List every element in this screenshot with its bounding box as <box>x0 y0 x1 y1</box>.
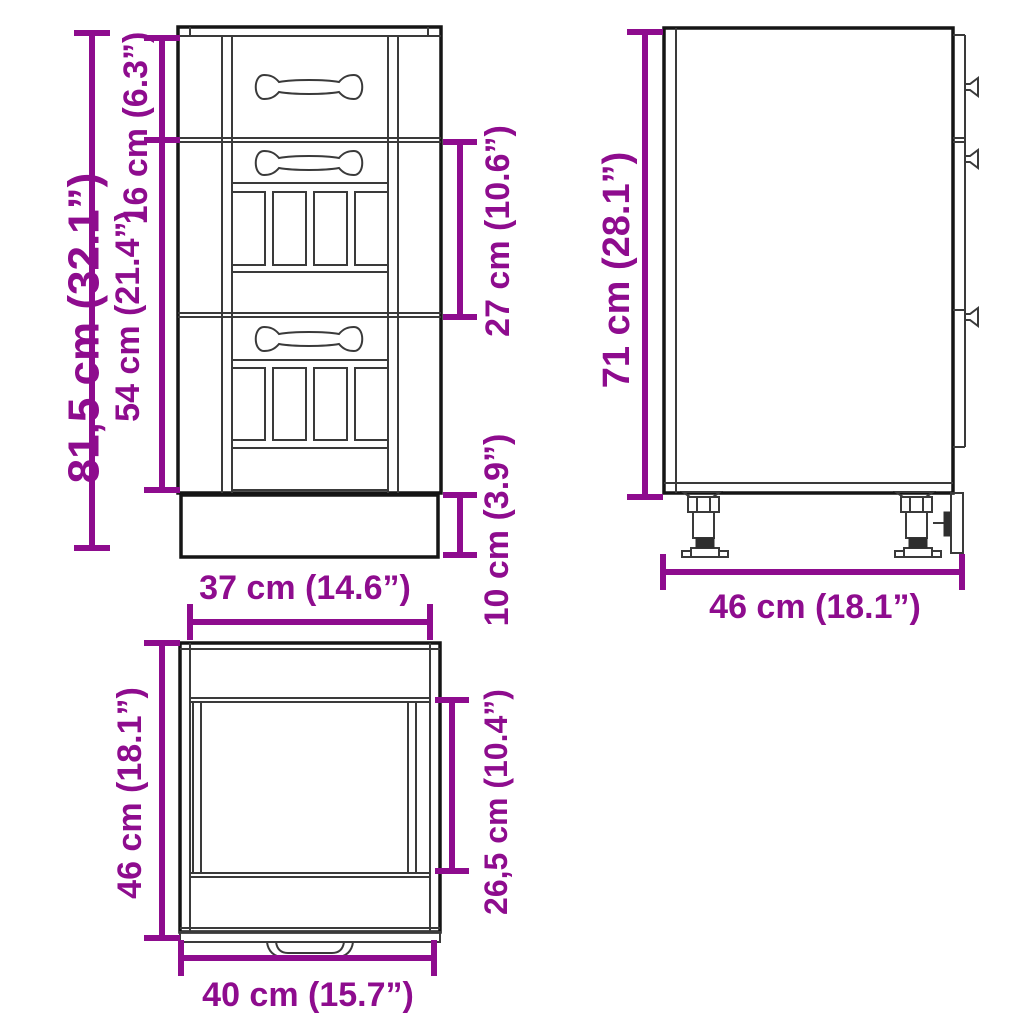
dim-line-top-depth <box>144 643 180 938</box>
label-side-depth: 46 cm (18.1”) <box>709 588 921 626</box>
cabinet-line-art: 81,5 cm (32.1”) 16 cm (6.3”) 54 cm (21.4… <box>0 0 1024 1024</box>
top-view-details <box>180 643 440 942</box>
front-leg-thread <box>696 538 714 548</box>
label-front-width: 37 cm (14.6”) <box>199 569 411 607</box>
top-view-outline <box>180 643 440 932</box>
rear-leg <box>895 492 963 557</box>
dim-line-side-depth <box>663 554 962 590</box>
top-view <box>180 643 440 957</box>
side-view <box>664 28 978 557</box>
rear-adjuster-knob <box>944 512 950 536</box>
dim-line-front-plinth <box>443 495 477 555</box>
wall-mount-clips <box>965 78 978 326</box>
label-front-plinth-height: 10 cm (3.9”) <box>478 434 516 627</box>
dimension-lines <box>74 32 962 976</box>
label-top-depth: 46 cm (18.1”) <box>111 687 149 899</box>
front-leg <box>682 492 728 557</box>
side-panel-outline <box>664 28 953 493</box>
front-frame-details <box>178 27 441 493</box>
label-front-middle-drawer-height: 27 cm (10.6”) <box>479 125 517 337</box>
drawer-handle-middle <box>256 151 363 175</box>
front-carcass-outline <box>178 27 441 493</box>
dim-line-front-width <box>190 604 430 640</box>
label-front-top-drawer-height: 16 cm (6.3”) <box>117 32 155 225</box>
label-front-lower-front-height: 54 cm (21.4”) <box>109 210 147 422</box>
front-plinth <box>181 495 438 557</box>
front-view <box>178 27 441 557</box>
dimension-diagram: 81,5 cm (32.1”) 16 cm (6.3”) 54 cm (21.4… <box>0 0 1024 1024</box>
rear-leg-thread <box>909 538 927 548</box>
label-side-body-height: 71 cm (28.1”) <box>596 152 638 389</box>
label-top-width: 40 cm (15.7”) <box>202 976 414 1014</box>
dim-line-top-width <box>181 940 434 976</box>
dim-line-front-middle-drawer <box>443 142 477 317</box>
label-top-inner-depth: 26,5 cm (10.4”) <box>478 689 514 915</box>
label-front-total-height: 81,5 cm (32.1”) <box>60 173 109 484</box>
top-view-handle-recess <box>267 942 353 957</box>
drawer-handle-bottom <box>256 327 363 351</box>
side-panel-details <box>664 28 965 493</box>
dimension-labels: 81,5 cm (32.1”) 16 cm (6.3”) 54 cm (21.4… <box>60 32 921 1014</box>
drawer-handle-top <box>256 75 363 99</box>
